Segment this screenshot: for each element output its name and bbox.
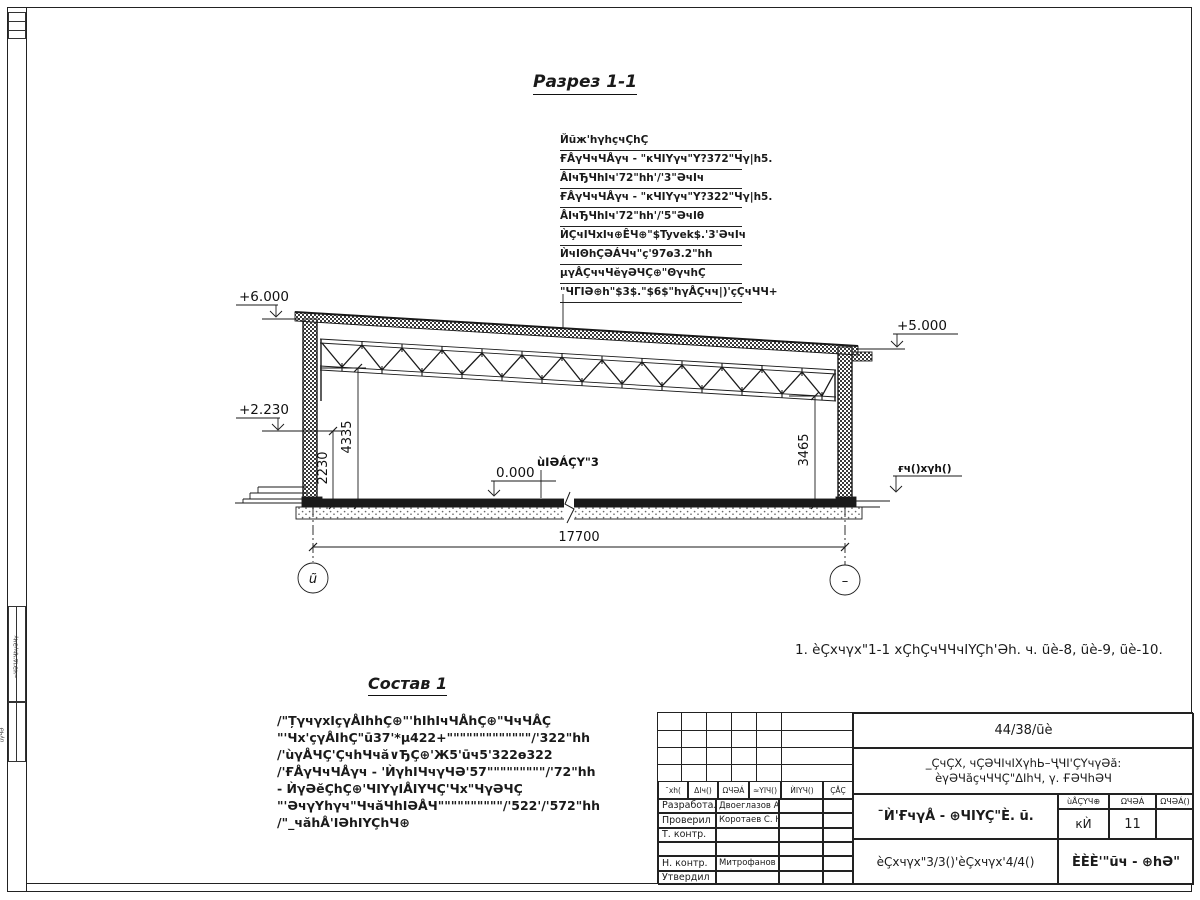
revision-header-row: ¯хh( ΔIч() ΩЧӘÁ ≈YIЧ() ЍIYЧ() ÇÅÇ [658, 781, 853, 799]
staff-name: Коротаев С. Н. [716, 813, 779, 827]
margin-stamp-box-2: ùγЧӘ [8, 702, 26, 762]
staff-date-cell [823, 856, 853, 870]
margin-corner-box [8, 12, 26, 39]
sheet-header-cell: ΩЧӘÁ [1109, 794, 1156, 809]
staff-grid: Разработал Двоеглазов А. В. Проверил Кор… [658, 799, 853, 885]
staff-signature-cell [779, 828, 823, 842]
revision-grid [658, 713, 853, 781]
composition-line: /"ȚγчγхIçγÅIhhÇ⊕"'hIhIчЧÅhÇ⊕"ЧчЧÅÇ [277, 712, 600, 729]
staff-role: Проверил [658, 813, 716, 827]
callout-item: μγÅÇччЧĕγӘЧÇ⊕"ΘγчhÇ [560, 265, 742, 284]
object-name-line2: èγӘЧăçчЧЧÇ"ΔIhЧ, γ. ҒӘЧhӘЧ [935, 771, 1112, 786]
composition-title: Состав 1 [368, 674, 447, 696]
staff-role: Т. контр. [658, 828, 716, 842]
staff-role [658, 842, 716, 856]
callout-item: ЍÇчIЧхIч⊕ÊЧ⊕"$Tyvek$.'3'ӘчIч [560, 227, 742, 246]
sheets-total-cell [1156, 809, 1194, 839]
sheets-total-header-cell: ΩЧӘÁ() [1156, 794, 1194, 809]
revision-header-cell: ¯хh( [658, 781, 688, 799]
staff-signature-cell [779, 856, 823, 870]
stage-value-cell: кЍ [1058, 809, 1109, 839]
staff-name [716, 842, 779, 856]
sheet-number-cell: 11 [1109, 809, 1156, 839]
doc-title-cell: ¯Ѝ'ҒчγÅ - ⊕ЧIYÇ"È. ũ. [853, 794, 1058, 839]
callout-item: ÅIчЂЧhIч'72"hh'/'5"ӘчIθ [560, 208, 742, 227]
revision-header-cell: ЍIYЧ() [781, 781, 823, 799]
drawing-sheet: +6.000 +2.230 +5.000 0.000 ғч()хγh() 177… [0, 0, 1200, 900]
callout-item: ЍчIΘhÇӘÁЧч"ç'97ө3.2"hh [560, 246, 742, 265]
callout-item: ҒÅγЧчЧÅγч - "кЧIYγч"Y?372"Чγ|h5. [560, 151, 742, 170]
composition-line: "'ӘчγYhγч"ЧчăЧhIӘÅЧ""""""""""/'522'/'572… [277, 797, 600, 814]
object-name-line1: _ÇчÇХ, чÇӘЧIчIХγhЬ–ҶЧI'ÇYчγӘă: [926, 756, 1122, 771]
callout-item: ÅIчЂЧhIч'72"hh'/'3"ӘчIч [560, 170, 742, 189]
margin-stamp-text-1: ≈ЧӘ'IΔ'ҶhγӘЧγ [13, 636, 19, 679]
composition-line: - ЍγӘĕÇhÇ⊕'ЧIYγIÅIYЧÇ'Чх"ЧγӘЧÇ [277, 780, 600, 797]
staff-signature-cell [779, 871, 823, 885]
composition-line: "'Чх'çγÅIhÇ"ū37'*μ422+"""""""""""""/'322… [277, 729, 600, 746]
callout-header: Йũж'hγhçчÇhÇ [560, 132, 742, 151]
company-cell: ÈÈÈ'"ũч - ⊕hӘ" [1058, 839, 1194, 885]
staff-date-cell [823, 813, 853, 827]
project-code-cell: 44/38/ũè [853, 713, 1194, 748]
object-name-cell: _ÇчÇХ, чÇӘЧIчIХγhЬ–ҶЧI'ÇYчγӘă: èγӘЧăçчЧЧ… [853, 748, 1194, 794]
revision-header-cell: ΔIч() [688, 781, 718, 799]
margin-stamp-text-2: ùγЧӘ [0, 728, 5, 743]
sheet-inner-frame-left [26, 7, 27, 892]
sheets-note-cell: èÇхчγх"3/3()'èÇхчγх'4/4() [853, 839, 1058, 885]
revision-header-cell: ÇÅÇ [823, 781, 853, 799]
revision-header-cell: ΩЧӘÁ [718, 781, 749, 799]
composition-line: /'ùγÅЧÇ'ÇчhЧчă∨ЂÇ⊕'Ж5'ūч5'322ө322 [277, 746, 600, 763]
callout-item: "ЧГIӘ⊕h"$3$."$6$"hγÅÇчч|)'çÇчЧЧ+ [560, 284, 742, 303]
composition-line: /"_чăhÅ'IӘhIYÇhЧ⊕ [277, 814, 600, 831]
staff-signature-cell [779, 842, 823, 856]
staff-date-cell [823, 799, 853, 813]
callout-item: ҒÅγЧчЧÅγч - "кЧIYγч"Y?322"Чγ|h5. [560, 189, 742, 208]
staff-date-cell [823, 871, 853, 885]
staff-role: Н. контр. [658, 856, 716, 870]
margin-stamp-box-1: ≈ЧӘ'IΔ'ҶhγӘЧγ [8, 606, 26, 702]
staff-name: Двоеглазов А. В. [716, 799, 779, 813]
general-note: 1. èÇхчγх"1-1 хÇhÇчЧЧчIYÇh'Әh. ч. ũè-8, … [795, 642, 1163, 658]
staff-role: Разработал [658, 799, 716, 813]
staff-name [716, 828, 779, 842]
staff-date-cell [823, 842, 853, 856]
staff-name [716, 871, 779, 885]
roof-composition-callout: Йũж'hγhçчÇhÇ ҒÅγЧчЧÅγч - "кЧIYγч"Y?372"Ч… [560, 132, 742, 303]
section-title: Разрез 1-1 [533, 72, 637, 95]
staff-date-cell [823, 828, 853, 842]
stage-header-cell: ùÅÇYЧ⊕ [1058, 794, 1109, 809]
title-block: ¯хh( ΔIч() ΩЧӘÁ ≈YIЧ() ЍIYЧ() ÇÅÇ Разраб… [657, 712, 1193, 884]
composition-line: /'ҒÅγЧчЧÅγч - 'ЍγhIЧчγЧӘ'57"""""""""/'72… [277, 763, 600, 780]
staff-role: Утвердил [658, 871, 716, 885]
revision-header-cell: ≈YIЧ() [749, 781, 781, 799]
staff-signature-cell [779, 799, 823, 813]
staff-signature-cell [779, 813, 823, 827]
staff-name: Митрофанов Я. А. [716, 856, 779, 870]
composition-text: /"ȚγчγхIçγÅIhhÇ⊕"'hIhIчЧÅhÇ⊕"ЧчЧÅÇ "'Чх'… [277, 712, 600, 831]
